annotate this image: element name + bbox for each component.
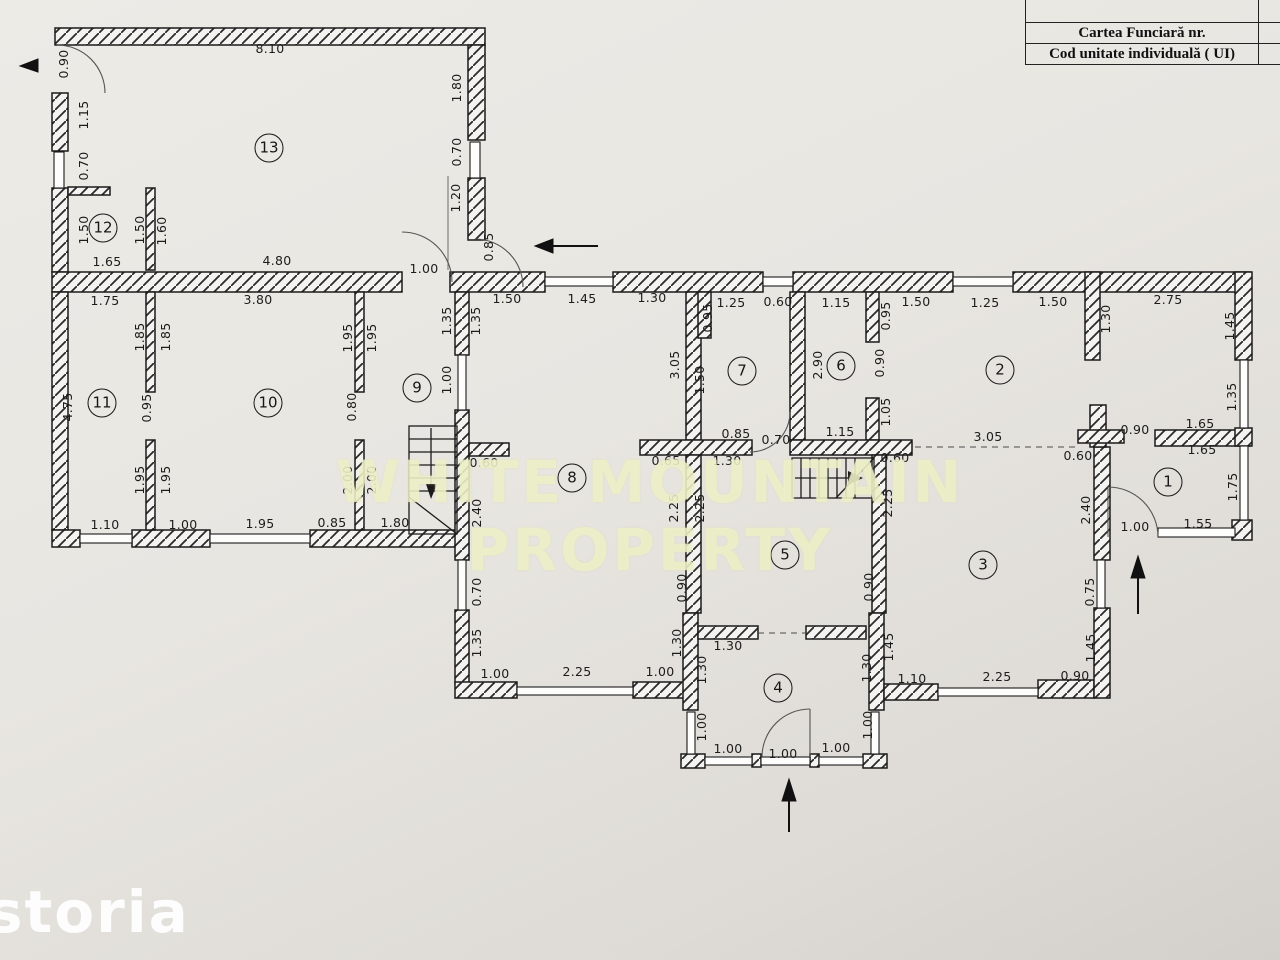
dimension-label: 1.95 [342, 323, 355, 352]
room-number: 4 [764, 674, 793, 703]
dimension-label: 1.00 [821, 742, 850, 755]
room-number: 1 [1154, 468, 1183, 497]
title-block-row-empty [1026, 0, 1280, 23]
dimension-label: 1.30 [712, 455, 741, 468]
dimension-label: 1.00 [696, 712, 709, 741]
dimension-label: 0.90 [676, 573, 689, 602]
dimension-label: 4.80 [262, 255, 291, 268]
room-number: 9 [403, 374, 432, 403]
dimension-label: 0.95 [880, 301, 893, 330]
dimension-label: 0.60 [880, 452, 909, 465]
walls [52, 28, 1252, 768]
dimension-label: 2.25 [668, 493, 681, 522]
cod-unitate-label: Cod unitate individuală ( UI) [1026, 44, 1259, 64]
room-number: 8 [558, 464, 587, 493]
dimension-label: 0.90 [863, 572, 876, 601]
dimension-label: 0.70 [471, 577, 484, 606]
dimension-label: 0.60 [469, 457, 498, 470]
dimension-label: 1.55 [1183, 518, 1212, 531]
dimension-label: 1.00 [1120, 521, 1149, 534]
dimension-label: 0.90 [1120, 424, 1149, 437]
dimension-label: 1.80 [451, 73, 464, 102]
title-block-table: Cartea Funciară nr. Cod unitate individu… [1025, 0, 1280, 65]
title-block-row-cartea: Cartea Funciară nr. [1026, 23, 1280, 44]
dimension-label: 1.50 [492, 293, 521, 306]
dimension-label: 0.70 [78, 151, 91, 180]
dimension-label: 1.30 [1100, 304, 1113, 333]
room-number: 7 [728, 357, 757, 386]
room-number: 10 [254, 389, 283, 418]
dimension-label: 3.80 [243, 294, 272, 307]
dimension-label: 1.35 [471, 628, 484, 657]
dimension-label: 3.05 [973, 431, 1002, 444]
dimension-label: 1.95 [366, 323, 379, 352]
title-block-cell [1026, 0, 1259, 22]
dimension-label: 1.95 [160, 465, 173, 494]
dimension-label: 0.85 [317, 517, 346, 530]
dimension-label: 1.85 [134, 322, 147, 351]
dimension-label: 0.65 [651, 455, 680, 468]
dimension-label: 1.00 [862, 710, 875, 739]
dimension-label: 1.45 [1085, 633, 1098, 662]
dimension-label: 0.85 [483, 232, 496, 261]
dimension-label: 0.85 [721, 428, 750, 441]
dimension-label: 1.80 [380, 517, 409, 530]
dimension-label: 1.30 [713, 640, 742, 653]
dimension-label: 1.25 [970, 297, 999, 310]
dimension-label: 1.10 [897, 673, 926, 686]
dimension-label: 0.75 [1084, 577, 1097, 606]
dimension-label: 1.00 [441, 365, 454, 394]
dimension-label: 0.70 [451, 137, 464, 166]
dimension-label: 0.90 [1060, 670, 1089, 683]
dimension-label: 2.25 [562, 666, 591, 679]
dimension-label: 1.25 [716, 297, 745, 310]
dimension-label: 1.65 [1187, 444, 1216, 457]
dimension-label: 1.50 [134, 215, 147, 244]
room-number: 13 [255, 134, 284, 163]
floor-plan-page: { "title_block": { "row1": "", "row2": "… [0, 0, 1280, 960]
room-number: 12 [89, 214, 118, 243]
dimension-label: 0.80 [346, 392, 359, 421]
dimension-label: 1.30 [637, 292, 666, 305]
dimension-label: 2.75 [1153, 294, 1182, 307]
dimension-label: 1.65 [92, 256, 121, 269]
dimension-label: 1.85 [160, 322, 173, 351]
dimension-label: 1.00 [480, 668, 509, 681]
dimension-label: 1.75 [1227, 472, 1240, 501]
dimension-label: 1.50 [694, 365, 707, 394]
dimension-label: 1.45 [567, 293, 596, 306]
dimension-label: 1.95 [245, 518, 274, 531]
dimension-label: 1.50 [901, 296, 930, 309]
dimension-label: 1.95 [134, 465, 147, 494]
dimension-label: 1.00 [409, 263, 438, 276]
dimension-label: 1.00 [713, 743, 742, 756]
dimension-label: 2.40 [1080, 495, 1093, 524]
dimension-label: 1.00 [168, 519, 197, 532]
room-number: 2 [986, 356, 1015, 385]
dimension-label: 2.40 [471, 498, 484, 527]
dimension-label: 1.30 [671, 628, 684, 657]
dimension-label: 1.05 [880, 397, 893, 426]
open-passages [758, 447, 1078, 633]
dimension-label: 8.10 [255, 43, 284, 56]
dimension-label: 2.90 [812, 350, 825, 379]
dimension-label: 1.35 [470, 306, 483, 335]
dimension-label: 0.95 [141, 393, 154, 422]
dimension-label: 1.35 [1226, 382, 1239, 411]
dimension-label: 1.00 [768, 748, 797, 761]
storia-watermark: storia [0, 878, 190, 946]
dimension-label: 1.10 [90, 519, 119, 532]
room-number: 5 [771, 541, 800, 570]
room-number: 11 [88, 389, 117, 418]
floor-plan-drawing [0, 0, 1280, 960]
title-block-side-cell [1259, 23, 1280, 43]
dimension-label: 2.25 [882, 488, 895, 517]
title-block-side-cell [1259, 0, 1280, 22]
title-block-row-cod: Cod unitate individuală ( UI) [1026, 44, 1280, 65]
dimension-label: 1.15 [825, 426, 854, 439]
dimension-label: 1.00 [645, 666, 674, 679]
dimension-label: 2.25 [694, 493, 707, 522]
dimension-label: 0.95 [702, 303, 715, 332]
dimension-label: 2.25 [982, 671, 1011, 684]
room-number: 3 [969, 551, 998, 580]
staircase-room9 [409, 426, 457, 534]
door-arcs [57, 45, 1158, 757]
dimension-label: 2.00 [342, 465, 355, 494]
cartea-funciara-label: Cartea Funciară nr. [1026, 23, 1259, 43]
room-number: 6 [827, 352, 856, 381]
dimension-label: 0.90 [58, 49, 71, 78]
dimension-label: 1.75 [90, 295, 119, 308]
dimension-label: 1.60 [156, 216, 169, 245]
dimension-label: 0.70 [761, 434, 790, 447]
direction-arrows [20, 59, 1145, 832]
dimension-label: 0.60 [1063, 450, 1092, 463]
dimension-label: 1.50 [1038, 296, 1067, 309]
dimension-label: 1.15 [821, 297, 850, 310]
dimension-label: 3.05 [669, 350, 682, 379]
dimension-label: 0.90 [874, 348, 887, 377]
dimension-label: 0.60 [763, 296, 792, 309]
dimension-label: 1.45 [883, 632, 896, 661]
dimension-label: 4.75 [62, 392, 75, 421]
dimension-label: 1.35 [441, 306, 454, 335]
dimension-label: 2.00 [366, 465, 379, 494]
dimension-label: 1.65 [1185, 418, 1214, 431]
dimension-label: 1.15 [78, 100, 91, 129]
dimension-label: 1.30 [696, 655, 709, 684]
dimension-label: 1.20 [450, 183, 463, 212]
dimension-label: 1.45 [1224, 311, 1237, 340]
dimension-label: 1.30 [861, 653, 874, 682]
title-block-side-cell [1259, 44, 1280, 64]
